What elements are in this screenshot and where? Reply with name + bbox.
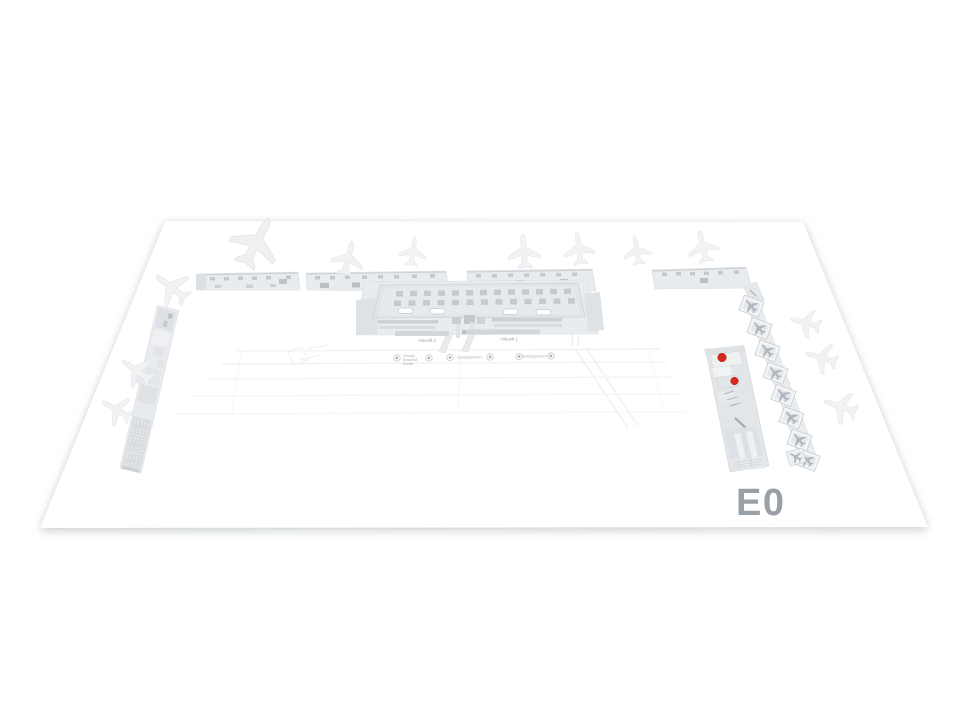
map-canvas[interactable]: Ankunft 2 Ankunft 1 Umland- Busse/BA Shu… — [0, 0, 960, 720]
stop-label-line: Bussteig A1/A71 — [523, 355, 548, 359]
bus-stop-icon-glyph — [550, 355, 552, 357]
bus-stop-icon-glyph — [518, 355, 520, 357]
poi-marker-2[interactable] — [731, 377, 739, 385]
arrival-2-label: Ankunft 2 — [418, 338, 436, 343]
north-pier-west — [196, 272, 300, 290]
floor-plate — [40, 221, 928, 528]
arrival-1-band — [466, 330, 540, 335]
arrival-2-band — [395, 331, 449, 336]
poi-marker-1[interactable] — [718, 353, 727, 362]
airport-floor-map-view: Ankunft 2 Ankunft 1 Umland- Busse/BA Shu… — [0, 0, 960, 720]
stop-label-line: Bussteig B1/B71 — [457, 356, 482, 360]
bus-stop-icon-glyph — [449, 356, 451, 358]
arrival-1-label: Ankunft 1 — [500, 337, 518, 342]
bus-stop-icon-glyph — [489, 356, 491, 358]
floor-level-label: E0 — [736, 482, 785, 524]
bus-stop-icon-glyph — [396, 357, 398, 359]
stop-label-line: Shuttle — [403, 362, 413, 366]
bus-stop-icon-glyph — [428, 357, 430, 359]
